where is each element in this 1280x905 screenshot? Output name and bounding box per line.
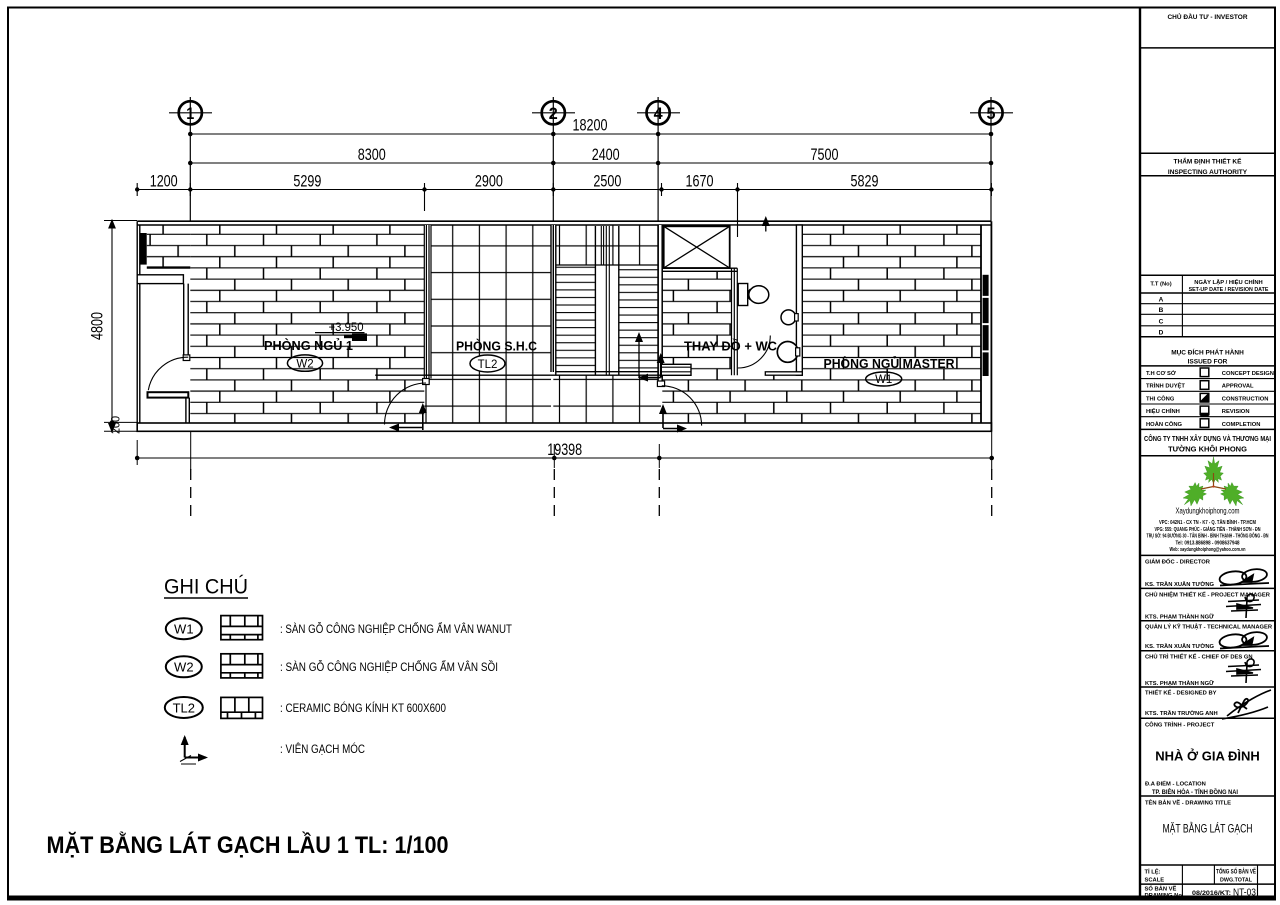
svg-text:REVISION: REVISION: [1222, 409, 1250, 415]
svg-text:Xaydungkhoiphong.com: Xaydungkhoiphong.com: [1176, 507, 1240, 516]
svg-text:08/2016/KT:: 08/2016/KT:: [1192, 890, 1231, 897]
svg-text:HOÀN CÔNG: HOÀN CÔNG: [1146, 420, 1183, 428]
svg-text:Đ.A ĐIỂM - LOCATION: Đ.A ĐIỂM - LOCATION: [1145, 780, 1206, 787]
svg-text:5299: 5299: [293, 172, 321, 190]
svg-text:1: 1: [186, 104, 194, 123]
svg-text:200: 200: [109, 416, 123, 434]
svg-text:2400: 2400: [592, 146, 620, 164]
svg-text:1670: 1670: [686, 172, 714, 190]
svg-text:THIẾT KẾ - DESIGNED BY: THIẾT KẾ - DESIGNED BY: [1145, 690, 1217, 697]
svg-text:W1: W1: [174, 622, 194, 637]
svg-text:MẶT BẰNG LÁT GẠCH LẦU 1 TL: 1/: MẶT BẰNG LÁT GẠCH LẦU 1 TL: 1/100: [47, 831, 449, 859]
svg-text:GHI CHÚ: GHI CHÚ: [164, 576, 248, 599]
svg-text:5: 5: [987, 104, 996, 123]
svg-text:TRỤ SỞ: 94 ĐƯỜNG 30 - TÂN BÌNH: TRỤ SỞ: 94 ĐƯỜNG 30 - TÂN BÌNH - BÌNH TH…: [1147, 532, 1269, 540]
svg-text:D: D: [1159, 330, 1164, 337]
svg-text:COMPLETION: COMPLETION: [1222, 422, 1261, 428]
svg-text:W2: W2: [174, 660, 194, 675]
svg-text:DRAWING No.: DRAWING No.: [1145, 893, 1184, 899]
svg-text:W2: W2: [296, 358, 313, 370]
svg-text:7500: 7500: [811, 146, 839, 164]
svg-text:NGÀY LẬP / HIỆU CHỈNH: NGÀY LẬP / HIỆU CHỈNH: [1194, 278, 1262, 286]
svg-text:PHÒNG NGỦ MASTER: PHÒNG NGỦ MASTER: [824, 356, 956, 371]
svg-text:Tel: 0913.886898 - 0908637948: Tel: 0913.886898 - 0908637948: [1176, 540, 1240, 546]
svg-text:B: B: [1159, 307, 1164, 314]
svg-text:PHÒNG S.H.C: PHÒNG S.H.C: [456, 339, 538, 354]
svg-text:T.T (No): T.T (No): [1150, 282, 1171, 288]
svg-text:Web: xaydungkhoiphong@yahoo.co: Web: xaydungkhoiphong@yahoo.com.vn: [1170, 547, 1246, 553]
svg-text:: SÀN GỖ CÔNG NGHIỆP CHỐNG ẨM: : SÀN GỖ CÔNG NGHIỆP CHỐNG ẨM VÂN WANUT: [280, 621, 513, 636]
svg-text:TỔNG SỐ BẢN VẼ: TỔNG SỐ BẢN VẼ: [1216, 869, 1256, 876]
svg-text:4: 4: [654, 104, 664, 123]
svg-text:QUẢN LÝ KỸ THUẬT - TECHNICAL: QUẢN LÝ KỸ THUẬT - TECHNICAL MANAGER: [1145, 623, 1273, 630]
svg-text:PHÒNG NGỦ 1: PHÒNG NGỦ 1: [264, 338, 353, 353]
svg-text:NHÀ Ở GIA ĐÌNH: NHÀ Ở GIA ĐÌNH: [1155, 749, 1260, 764]
svg-text:VPG: 555: QUANG PHÚC - GIẢNG T: VPG: 555: QUANG PHÚC - GIẢNG TIỀN - THÀN…: [1155, 526, 1261, 533]
svg-text:: CERAMIC BÓNG KÍNH KT 600X600: : CERAMIC BÓNG KÍNH KT 600X600: [280, 700, 446, 715]
svg-text:2500: 2500: [593, 172, 621, 190]
svg-text:NT-03: NT-03: [1233, 888, 1256, 899]
svg-text:8300: 8300: [358, 146, 386, 164]
svg-text:4800: 4800: [89, 312, 107, 340]
svg-text:KS. TRẦN XUÂN TƯỜNG: KS. TRẦN XUÂN TƯỜNG: [1145, 642, 1215, 650]
svg-text:APPROVAL: APPROVAL: [1222, 384, 1254, 390]
svg-text:MỤC ĐÍCH PHÁT HÀNH: MỤC ĐÍCH PHÁT HÀNH: [1171, 348, 1244, 357]
svg-text:: VIÊN GẠCH MÓC: : VIÊN GẠCH MÓC: [280, 741, 365, 756]
svg-text:: SÀN GỖ CÔNG NGHIỆP CHỐNG ẨM: : SÀN GỖ CÔNG NGHIỆP CHỐNG ẨM VÂN SỒI: [280, 659, 498, 674]
svg-text:TL2: TL2: [173, 700, 195, 715]
svg-text:KS. TRẦN XUÂN TƯỜNG: KS. TRẦN XUÂN TƯỜNG: [1145, 580, 1215, 588]
svg-text:CÔNG TRÌNH - PROJECT: CÔNG TRÌNH - PROJECT: [1145, 721, 1215, 729]
svg-text:KTS. PHẠM THÀNH NGỮ: KTS. PHẠM THÀNH NGỮ: [1145, 680, 1214, 687]
svg-text:TÊN BẢN VẼ - DRAWING TITLE: TÊN BẢN VẼ - DRAWING TITLE: [1145, 799, 1231, 807]
svg-text:TRÌNH DUYỆT: TRÌNH DUYỆT: [1146, 382, 1185, 390]
svg-text:TƯỜNG KHÔI PHONG: TƯỜNG KHÔI PHONG: [1168, 445, 1247, 454]
svg-text:DWG.TOTAL: DWG.TOTAL: [1220, 878, 1253, 884]
svg-text:CHỦ TRÌ THIẾT KẾ - CHIEF OF D: CHỦ TRÌ THIẾT KẾ - CHIEF OF DES GN: [1145, 653, 1253, 661]
svg-text:5829: 5829: [851, 172, 879, 190]
svg-text:VPC: 042N1 - CX TN - K7 - Q. T: VPC: 042N1 - CX TN - K7 - Q. TÂN BÌNH - …: [1159, 518, 1256, 526]
svg-text:TỈ LỆ:: TỈ LỆ:: [1145, 868, 1161, 876]
svg-text:KTS. PHẠM THÀNH NGỮ: KTS. PHẠM THÀNH NGỮ: [1145, 614, 1214, 621]
svg-text:SCALE: SCALE: [1145, 878, 1165, 884]
svg-text:SET-UP DATE / REVISION DATE: SET-UP DATE / REVISION DATE: [1189, 287, 1269, 293]
svg-text:A: A: [1159, 297, 1164, 304]
svg-text:ISSUED FOR: ISSUED FOR: [1188, 358, 1228, 365]
svg-text:KTS. TRẦN TRƯỜNG ANH: KTS. TRẦN TRƯỜNG ANH: [1145, 709, 1218, 717]
svg-text:CONCEPT DESIGN: CONCEPT DESIGN: [1222, 371, 1274, 377]
svg-text:2: 2: [549, 104, 558, 123]
svg-text:W1: W1: [875, 374, 892, 386]
svg-text:CONSTRUCTION: CONSTRUCTION: [1222, 396, 1269, 402]
svg-text:HIỆU CHỈNH: HIỆU CHỈNH: [1146, 407, 1180, 415]
svg-text:INSPECTING AUTHORITY: INSPECTING AUTHORITY: [1168, 169, 1248, 176]
svg-text:THI CÔNG: THI CÔNG: [1146, 394, 1175, 402]
svg-text:GIÁM ĐỐC - DIRECTOR: GIÁM ĐỐC - DIRECTOR: [1145, 559, 1211, 566]
svg-text:T.H CƠ SỞ: T.H CƠ SỞ: [1146, 370, 1176, 377]
svg-text:SỐ BẢN VẼ: SỐ BẢN VẼ: [1145, 886, 1177, 893]
svg-text:2900: 2900: [475, 172, 503, 190]
svg-text:TL2: TL2: [478, 359, 498, 371]
svg-text:18200: 18200: [573, 117, 608, 135]
svg-text:19398: 19398: [547, 441, 582, 459]
svg-text:CÔNG TY TNHH XÂY DỰNG VÀ THƯƠN: CÔNG TY TNHH XÂY DỰNG VÀ THƯƠNG MẠI: [1144, 434, 1271, 443]
svg-text:MẶT BẰNG LÁT GẠCH: MẶT BẰNG LÁT GẠCH: [1163, 821, 1253, 836]
svg-text:1200: 1200: [150, 172, 178, 190]
svg-text:THAY ĐỒ + WC: THAY ĐỒ + WC: [684, 338, 778, 353]
svg-text:C: C: [1159, 319, 1164, 326]
